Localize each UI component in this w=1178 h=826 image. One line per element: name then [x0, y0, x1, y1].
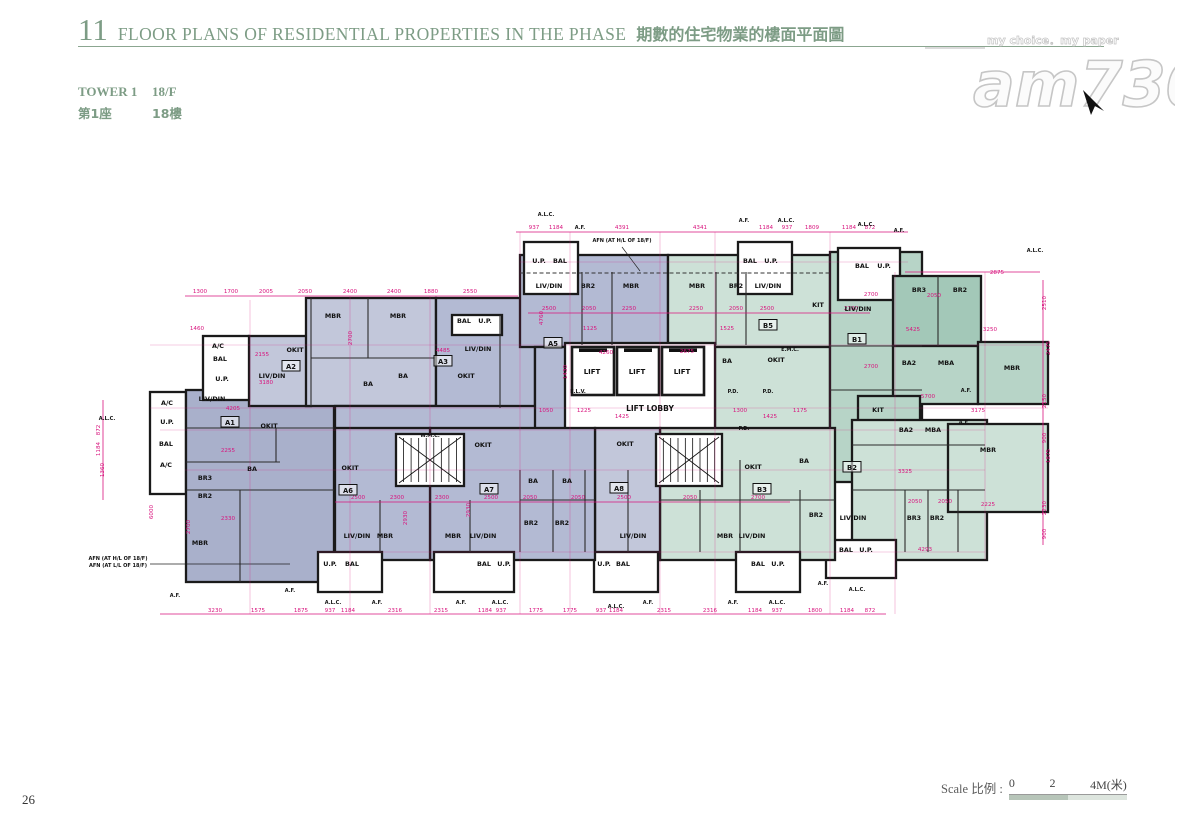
dimension-value: 1775 [529, 608, 544, 614]
dimension-value: 1430 [563, 364, 569, 379]
annotation-label: A.L.C. [538, 212, 555, 218]
dimension-value: 2300 [435, 495, 450, 501]
room-label: LIFT [584, 368, 601, 376]
room-label: BAL [159, 440, 173, 448]
dimension-value: 2700 [864, 364, 879, 370]
dimension-value: 1525 [720, 326, 735, 332]
dimension-value: 3175 [971, 408, 986, 414]
annotation-label: A.L.C. [858, 222, 875, 228]
unit-badge: A7 [484, 486, 494, 494]
scale-label: Scale 比例 : [941, 778, 1003, 797]
room-label: BAL [553, 257, 567, 265]
annotation-label: A.F. [959, 420, 970, 426]
annotation-label: AFN (AT H/L OF 18/F) [89, 556, 148, 562]
dimension-value: 2300 [390, 495, 405, 501]
room-label: A/C [160, 461, 172, 469]
dimension-value: 1300 [733, 408, 748, 414]
room-label: BAL [751, 560, 765, 568]
dimension-value: 5425 [906, 327, 921, 333]
room-label: LIV/DIN [755, 282, 782, 290]
unit-badge: A8 [614, 485, 624, 493]
dimension-value: 5700 [921, 394, 936, 400]
dimension-value: 2230 [1042, 500, 1048, 515]
dimension-value: 2050 [523, 495, 538, 501]
annotation-label: A.L.C. [608, 604, 625, 610]
annotation-label: A.L.C. [99, 416, 116, 422]
room-label: LIV/DIN [840, 514, 867, 522]
dimension-value: 1425 [763, 414, 778, 420]
dimension-value: 1184 [840, 608, 855, 614]
annotation-label: AFN (AT H/L OF 18/F) [593, 238, 652, 244]
room-label: BA [562, 477, 572, 485]
dimension-value: 2315 [657, 608, 672, 614]
dimension-value: 4760 [539, 310, 545, 325]
dimension-value: 2050 [729, 306, 744, 312]
room-label: MBA [938, 359, 954, 367]
dimension-value: 4341 [693, 225, 708, 231]
scale-segment-dark [1009, 795, 1068, 800]
room-label: MBR [445, 532, 461, 540]
annotation-label: A.F. [643, 600, 654, 606]
dimension-value: 3180 [259, 380, 274, 386]
dimension-value: 937 [325, 608, 336, 614]
unit-badge: A3 [438, 358, 448, 366]
dimension-value: 3250 [983, 327, 998, 333]
dimension-value: 1875 [1046, 448, 1052, 463]
dimension-value: 2005 [259, 289, 274, 295]
room-label: BAL [839, 546, 853, 554]
dimension-value: 4260 [599, 350, 614, 356]
dimension-value: 4205 [226, 406, 241, 412]
unit-block [948, 424, 1048, 512]
dimension-value: 2675 [680, 349, 695, 355]
dimension-value: 3230 [208, 608, 223, 614]
dimension-value: 900 [1042, 528, 1048, 539]
room-label: OKIT [457, 372, 475, 380]
annotation-label: A.F. [894, 228, 905, 234]
dimension-value: 872 [865, 608, 876, 614]
room-label: LIV/DIN [259, 372, 286, 380]
dimension-value: 1360 [100, 462, 106, 477]
annotation-label: A.L.C. [325, 600, 342, 606]
dimension-value: 2250 [689, 306, 704, 312]
room-label: BA [799, 457, 809, 465]
dimension-value: 2050 [683, 495, 698, 501]
dimension-value: 2316 [388, 608, 403, 614]
dimension-value: 900 [1042, 432, 1048, 443]
dimension-value: 1775 [563, 608, 578, 614]
dimension-value: 872 [96, 425, 102, 436]
annotation-label: A.F. [170, 593, 181, 599]
dimension-value: 2315 [434, 608, 449, 614]
room-label: BA [247, 465, 257, 473]
room-label: BAL [477, 560, 491, 568]
dimension-value: 1125 [583, 326, 598, 332]
annotation-label: A.F. [456, 600, 467, 606]
room-label: U.P. [764, 257, 778, 265]
dimension-value: 4293 [918, 547, 933, 553]
room-label: BA2 [902, 359, 916, 367]
unit-block [203, 336, 249, 400]
room-label: MBR [377, 532, 393, 540]
room-label: LIV/DIN [344, 532, 371, 540]
dimension-value: 2400 [343, 289, 358, 295]
dimension-value: 2316 [703, 608, 718, 614]
room-label: BR3 [198, 474, 212, 482]
annotation-label: E.L.V. [570, 389, 586, 395]
unit-badge: B5 [763, 322, 773, 330]
room-label: MBR [623, 282, 639, 290]
dimension-value: 2400 [387, 289, 402, 295]
dimension-value: 1460 [190, 326, 205, 332]
unit-badge: B2 [847, 464, 857, 472]
annotation-label: A.L.C. [849, 587, 866, 593]
unit-block [434, 552, 514, 592]
room-label: LIFT [629, 368, 646, 376]
dimension-value: 1184 [478, 608, 493, 614]
dimension-value: 1425 [615, 414, 630, 420]
dimension-value: 2255 [221, 448, 236, 454]
room-label: MBR [325, 312, 341, 320]
unit-badge: A2 [286, 363, 296, 371]
annotation-label: W.M.C. [420, 433, 440, 439]
unit-block [978, 342, 1048, 404]
unit-badge: A5 [548, 340, 558, 348]
room-label: LIV/DIN [199, 395, 226, 403]
dimension-value: 2700 [751, 495, 766, 501]
dimension-value: 1184 [341, 608, 356, 614]
room-label: OKIT [341, 464, 359, 472]
room-label: U.P. [497, 560, 511, 568]
dimension-value: 1225 [577, 408, 592, 414]
dimension-value: 2700 [864, 292, 879, 298]
dimension-value: 2475 [1046, 340, 1052, 355]
room-label: OKIT [260, 422, 278, 430]
room-label: BAL [743, 257, 757, 265]
room-label: BR2 [581, 282, 595, 290]
dimension-value: 2050 [298, 289, 313, 295]
dimension-value: 2500 [484, 495, 499, 501]
room-label: BR3 [907, 514, 921, 522]
room-label: BR2 [930, 514, 944, 522]
room-label: U.P. [597, 560, 611, 568]
dimension-value: 1700 [224, 289, 239, 295]
room-label: OKIT [474, 441, 492, 449]
dimension-value: 2700 [186, 519, 192, 534]
dimension-value: 1809 [805, 225, 820, 231]
dimension-value: 2050 [571, 495, 586, 501]
dimension-value: 1800 [808, 608, 823, 614]
annotation-label: A.F. [575, 225, 586, 231]
dimension-value: 2150 [1042, 393, 1048, 408]
room-label: KIT [812, 301, 824, 309]
annotation-label: P.D. [739, 426, 750, 432]
dimension-value: 2930 [466, 502, 472, 517]
unit-badge: A6 [343, 487, 353, 495]
dimension-value: 2050 [927, 293, 942, 299]
dimension-value: 2500 [760, 306, 775, 312]
unit-block [594, 552, 658, 592]
room-label: U.P. [859, 546, 873, 554]
room-label: MBA [925, 426, 941, 434]
lift-door [624, 349, 652, 353]
dimension-value: 1575 [251, 608, 266, 614]
dimension-value: 2250 [622, 306, 637, 312]
dimension-value: 3325 [898, 469, 913, 475]
scale-tick-2: 2 [1049, 776, 1055, 793]
room-label: BR2 [729, 282, 743, 290]
annotation-label: A.F. [285, 588, 296, 594]
room-label: BA2 [899, 426, 913, 434]
dimension-value: 2510 [1042, 295, 1048, 310]
room-label: U.P. [160, 418, 174, 426]
dimension-value: 2050 [908, 499, 923, 505]
room-label: KIT [872, 406, 884, 414]
scale-ruler: 0 2 4M(米) [1009, 776, 1127, 800]
dimension-value: 2500 [351, 495, 366, 501]
room-label: MBR [390, 312, 406, 320]
dimension-value: 1875 [294, 608, 309, 614]
room-label: BA [363, 380, 373, 388]
dimension-value: 2225 [981, 502, 996, 508]
room-label: BAL [213, 355, 227, 363]
dimension-value: 1184 [748, 608, 763, 614]
room-label: LIV/DIN [739, 532, 766, 540]
annotation-label: P.D. [763, 389, 774, 395]
unit-block [186, 390, 334, 582]
dimension-value: 937 [772, 608, 783, 614]
room-label: A/C [212, 342, 224, 350]
room-label: MBR [717, 532, 733, 540]
room-label: BAL [855, 262, 869, 270]
dimension-value: 937 [496, 608, 507, 614]
dimension-value: 1184 [549, 225, 564, 231]
room-label: U.P. [877, 262, 891, 270]
unit-badge: A1 [225, 419, 235, 427]
dimension-value: 4485 [436, 348, 451, 354]
room-label: MBR [192, 539, 208, 547]
annotation-label: AFN (AT L/L OF 18/F) [89, 563, 147, 569]
unit-badge: B1 [852, 336, 862, 344]
room-label: LIV/DIN [465, 345, 492, 353]
dimension-value: 1050 [539, 408, 554, 414]
room-label: LIFT [674, 368, 691, 376]
annotation-label: A.L.C. [769, 600, 786, 606]
room-label: BAL [616, 560, 630, 568]
room-label: BA [398, 372, 408, 380]
room-label: BR2 [809, 511, 823, 519]
room-label: BR2 [198, 492, 212, 500]
room-label: BR2 [953, 286, 967, 294]
dimension-value: 2875 [990, 270, 1005, 276]
room-label: LIV/DIN [470, 532, 497, 540]
scale-tick-0: 0 [1009, 776, 1015, 793]
dimension-value: 6000 [149, 504, 155, 519]
annotation-label: A.F. [818, 581, 829, 587]
dimension-value: 1184 [842, 225, 857, 231]
unit-badge: B3 [757, 486, 767, 494]
unit-block [736, 552, 800, 592]
annotation-label: A.F. [372, 600, 383, 606]
room-label: MBR [689, 282, 705, 290]
scale-bar: Scale 比例 : 0 2 4M(米) [941, 776, 1127, 800]
unit-block [893, 276, 981, 346]
dimension-value: 1880 [424, 289, 439, 295]
unit-block [535, 347, 567, 435]
dimension-value: 1300 [193, 289, 208, 295]
dimension-value: 2550 [463, 289, 478, 295]
room-label: LIV/DIN [845, 305, 872, 313]
room-label: LIV/DIN [620, 532, 647, 540]
room-label: OKIT [744, 463, 762, 471]
floorplan-svg: 9371184439143411184937180911848721300170… [0, 0, 1178, 826]
room-label: MBR [980, 446, 996, 454]
annotation-label: A.F. [739, 218, 750, 224]
dimension-value: 1175 [793, 408, 808, 414]
room-label: U.P. [323, 560, 337, 568]
room-label: BR2 [555, 519, 569, 527]
room-label: BAL [345, 560, 359, 568]
dimension-value: 1184 [759, 225, 774, 231]
room-label: BAL [457, 317, 471, 325]
room-label: BA [722, 357, 732, 365]
room-label: OKIT [767, 356, 785, 364]
room-label: U.P. [478, 317, 492, 325]
annotation-label: A.F. [728, 600, 739, 606]
room-label: BA [528, 477, 538, 485]
dimension-value: 937 [596, 608, 607, 614]
annotation-label: E.M.C. [781, 347, 799, 353]
room-label: LIV/DIN [536, 282, 563, 290]
room-label: OKIT [286, 346, 304, 354]
room-label: U.P. [532, 257, 546, 265]
annotation-label: A.L.C. [778, 218, 795, 224]
dimension-value: 2050 [582, 306, 597, 312]
dimension-value: 937 [529, 225, 540, 231]
annotation-label: P.D. [728, 389, 739, 395]
room-label: A/C [161, 399, 173, 407]
dimension-value: 2930 [403, 510, 409, 525]
dimension-value: 2155 [255, 352, 270, 358]
room-label: LIFT LOBBY [626, 404, 674, 413]
dimension-value: 2500 [617, 495, 632, 501]
room-label: BR3 [912, 286, 926, 294]
dimension-value: 2700 [348, 330, 354, 345]
dimension-value: 937 [782, 225, 793, 231]
annotation-label: A.F. [961, 388, 972, 394]
room-label: U.P. [215, 375, 229, 383]
dimension-value: 2050 [938, 499, 953, 505]
scale-segment-light [1068, 795, 1127, 800]
room-label: U.P. [771, 560, 785, 568]
room-label: OKIT [616, 440, 634, 448]
dimension-value: 1184 [96, 441, 102, 456]
annotation-label: A.L.C. [1027, 248, 1044, 254]
room-label: MBR [1004, 364, 1020, 372]
scale-tick-4m: 4M(米) [1090, 776, 1127, 793]
dimension-value: 2330 [221, 516, 236, 522]
page-number: 26 [22, 792, 35, 808]
dimension-value: 4391 [615, 225, 630, 231]
annotation-label: A.L.C. [492, 600, 509, 606]
room-label: BR2 [524, 519, 538, 527]
